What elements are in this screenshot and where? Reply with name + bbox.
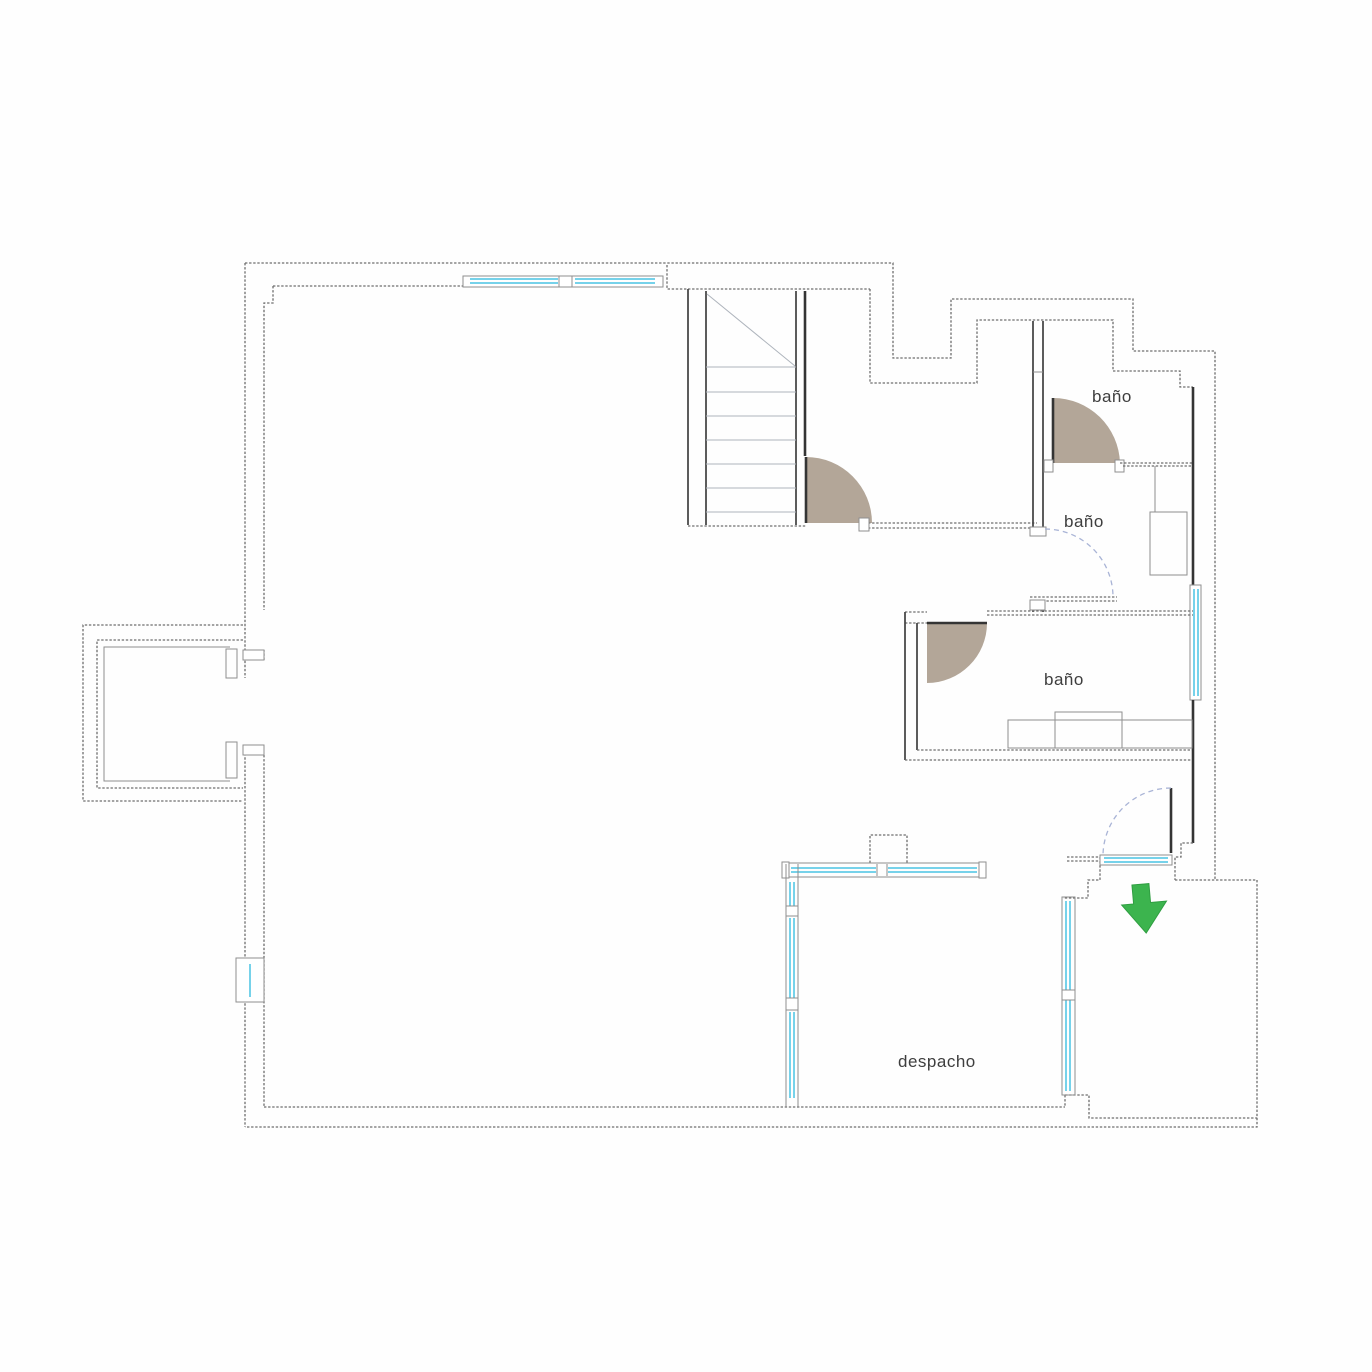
- door-swing-fill: [1053, 398, 1120, 463]
- window-left: [236, 958, 264, 1002]
- door-jamb: [243, 745, 264, 755]
- glazed-partition-entry: [1062, 897, 1075, 1095]
- vanity-counter: [1008, 720, 1192, 748]
- door-jamb: [1030, 600, 1045, 610]
- door-jamb: [1044, 460, 1053, 472]
- pillar: [870, 835, 907, 863]
- room-label-office: despacho: [898, 1052, 976, 1071]
- entrance-arrow-icon: [1120, 882, 1169, 935]
- door-jamb: [243, 650, 264, 660]
- washbasin: [1055, 712, 1122, 748]
- mullion: [1062, 990, 1075, 1000]
- bathroom-top: [1044, 398, 1193, 472]
- door-swing-fill: [927, 623, 987, 683]
- right-wall: [1175, 387, 1201, 880]
- mullion: [786, 998, 798, 1010]
- room-labels: baño baño baño despacho: [898, 387, 1132, 1071]
- middle-room: [805, 289, 1193, 531]
- door-swing-arc: [1045, 529, 1113, 597]
- door-jamb: [1115, 460, 1124, 472]
- room-label-bathroom-top: baño: [1092, 387, 1132, 406]
- entry-door: [1100, 855, 1172, 865]
- floor-plan-page: baño baño baño despacho: [0, 0, 1372, 1372]
- room-label-bathroom-lower: baño: [1044, 670, 1084, 689]
- window-right: [1190, 585, 1201, 700]
- door-jamb: [1030, 527, 1046, 536]
- door-jamb: [859, 518, 869, 531]
- bathroom-middle: [1030, 466, 1187, 610]
- entry: [1063, 788, 1257, 1118]
- window-top: [463, 276, 663, 287]
- door-swing-arc: [1103, 788, 1171, 856]
- door-swing-fill: [806, 457, 872, 523]
- floor-plan-svg: baño baño baño despacho: [0, 0, 1372, 1372]
- terrace: [83, 625, 243, 801]
- room-label-bathroom-middle: baño: [1064, 512, 1104, 531]
- interior-walls: [243, 265, 1065, 1107]
- washbasin: [1150, 512, 1187, 575]
- mullion: [786, 906, 798, 916]
- stair-break-line: [707, 294, 795, 366]
